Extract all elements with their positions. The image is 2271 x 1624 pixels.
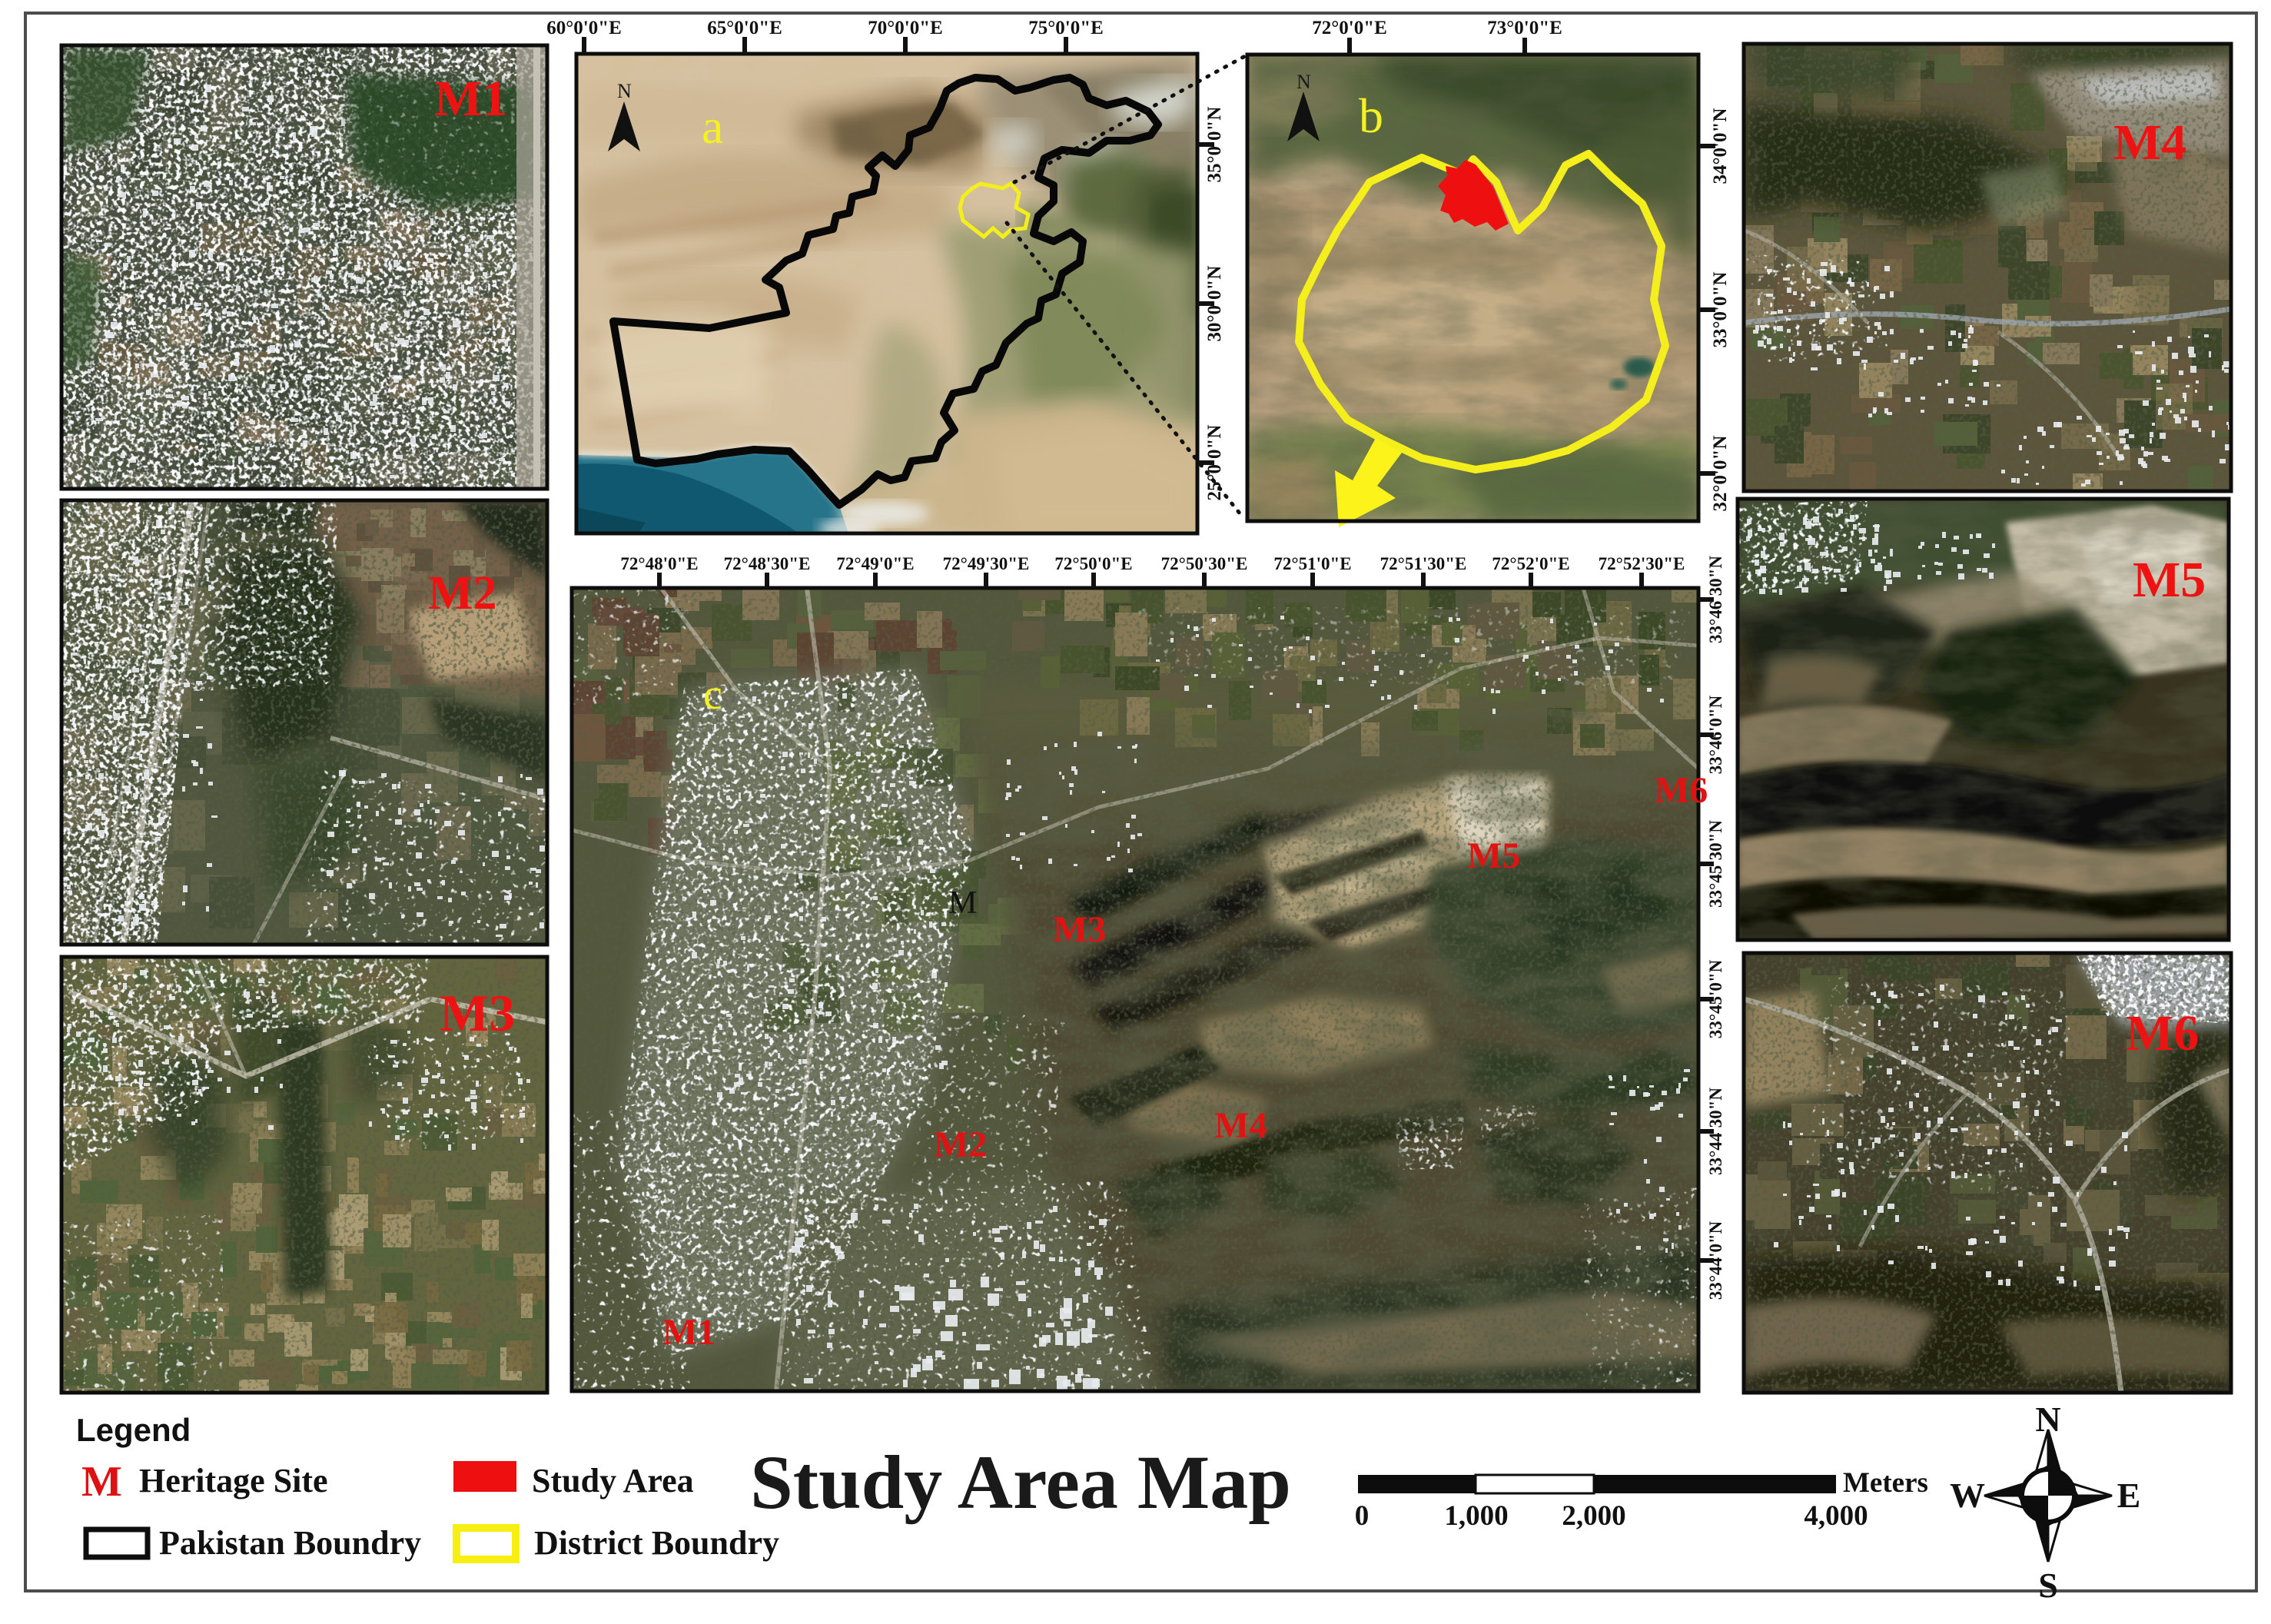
svg-text:35°0'0"N: 35°0'0"N (1204, 107, 1225, 183)
svg-text:33°45'0"N: 33°45'0"N (1706, 959, 1725, 1038)
svg-text:60°0'0"E: 60°0'0"E (546, 18, 622, 38)
svg-text:32°0'0"N: 32°0'0"N (1710, 436, 1731, 512)
svg-text:M5: M5 (1467, 835, 1520, 876)
svg-text:72°48'0"E: 72°48'0"E (620, 554, 698, 573)
svg-text:72°52'0"E: 72°52'0"E (1492, 554, 1569, 573)
svg-text:Pakistan Boundry: Pakistan Boundry (159, 1524, 421, 1562)
svg-text:4,000: 4,000 (1804, 1500, 1868, 1532)
svg-text:Study Area: Study Area (532, 1462, 694, 1499)
svg-text:M3: M3 (440, 984, 515, 1042)
svg-text:33°45'30"N: 33°45'30"N (1706, 820, 1725, 908)
svg-text:72°49'30"E: 72°49'30"E (943, 554, 1030, 573)
svg-text:30°0'0"N: 30°0'0"N (1204, 266, 1225, 342)
svg-text:M4: M4 (2113, 115, 2186, 171)
svg-text:65°0'0"E: 65°0'0"E (707, 18, 782, 38)
svg-text:72°51'0"E: 72°51'0"E (1273, 554, 1351, 573)
svg-text:M5: M5 (2133, 552, 2206, 608)
svg-text:72°52'30"E: 72°52'30"E (1599, 554, 1685, 573)
svg-text:c: c (703, 671, 722, 719)
svg-text:N: N (1297, 71, 1311, 93)
svg-text:34°0'0"N: 34°0'0"N (1710, 108, 1731, 184)
svg-text:M: M (81, 1458, 122, 1506)
svg-text:M1: M1 (434, 71, 507, 127)
svg-text:a: a (702, 99, 723, 154)
svg-text:33°46'0"N: 33°46'0"N (1706, 695, 1725, 774)
svg-text:M2: M2 (428, 567, 497, 619)
svg-text:M6: M6 (1655, 770, 1708, 811)
svg-text:72°0'0"E: 72°0'0"E (1312, 18, 1387, 38)
svg-text:M2: M2 (934, 1124, 987, 1165)
svg-text:33°44'0"N: 33°44'0"N (1706, 1220, 1725, 1300)
svg-text:33°46'30"N: 33°46'30"N (1706, 556, 1725, 643)
svg-text:33°0'0"N: 33°0'0"N (1710, 272, 1731, 348)
svg-text:72°50'30"E: 72°50'30"E (1161, 554, 1248, 573)
svg-text:N: N (617, 80, 632, 102)
svg-text:M: M (948, 885, 977, 921)
svg-text:Study Area Map: Study Area Map (750, 1440, 1291, 1525)
svg-text:72°49'0"E: 72°49'0"E (836, 554, 914, 573)
svg-text:b: b (1359, 88, 1383, 143)
svg-text:1,000: 1,000 (1444, 1500, 1508, 1532)
svg-text:75°0'0"E: 75°0'0"E (1028, 18, 1104, 38)
svg-text:72°50'0"E: 72°50'0"E (1054, 554, 1132, 573)
svg-text:Heritage Site: Heritage Site (139, 1462, 328, 1499)
svg-text:M1: M1 (662, 1312, 715, 1353)
svg-text:72°51'30"E: 72°51'30"E (1380, 554, 1467, 573)
svg-text:M4: M4 (1214, 1105, 1267, 1146)
svg-text:Meters: Meters (1843, 1467, 1928, 1499)
svg-text:33°44'30"N: 33°44'30"N (1706, 1088, 1725, 1175)
svg-text:N: N (2035, 1400, 2060, 1439)
svg-text:M3: M3 (1053, 909, 1106, 950)
svg-text:0: 0 (1355, 1500, 1370, 1532)
svg-text:M6: M6 (2126, 1005, 2199, 1061)
svg-text:72°48'30"E: 72°48'30"E (724, 554, 811, 573)
svg-text:2,000: 2,000 (1562, 1500, 1625, 1532)
svg-text:District Boundry: District Boundry (534, 1524, 779, 1562)
svg-text:Legend: Legend (76, 1412, 191, 1448)
svg-text:E: E (2117, 1476, 2141, 1515)
svg-text:S: S (2038, 1566, 2058, 1605)
svg-text:W: W (1950, 1476, 1985, 1515)
svg-text:70°0'0"E: 70°0'0"E (868, 18, 943, 38)
svg-text:73°0'0"E: 73°0'0"E (1487, 18, 1562, 38)
